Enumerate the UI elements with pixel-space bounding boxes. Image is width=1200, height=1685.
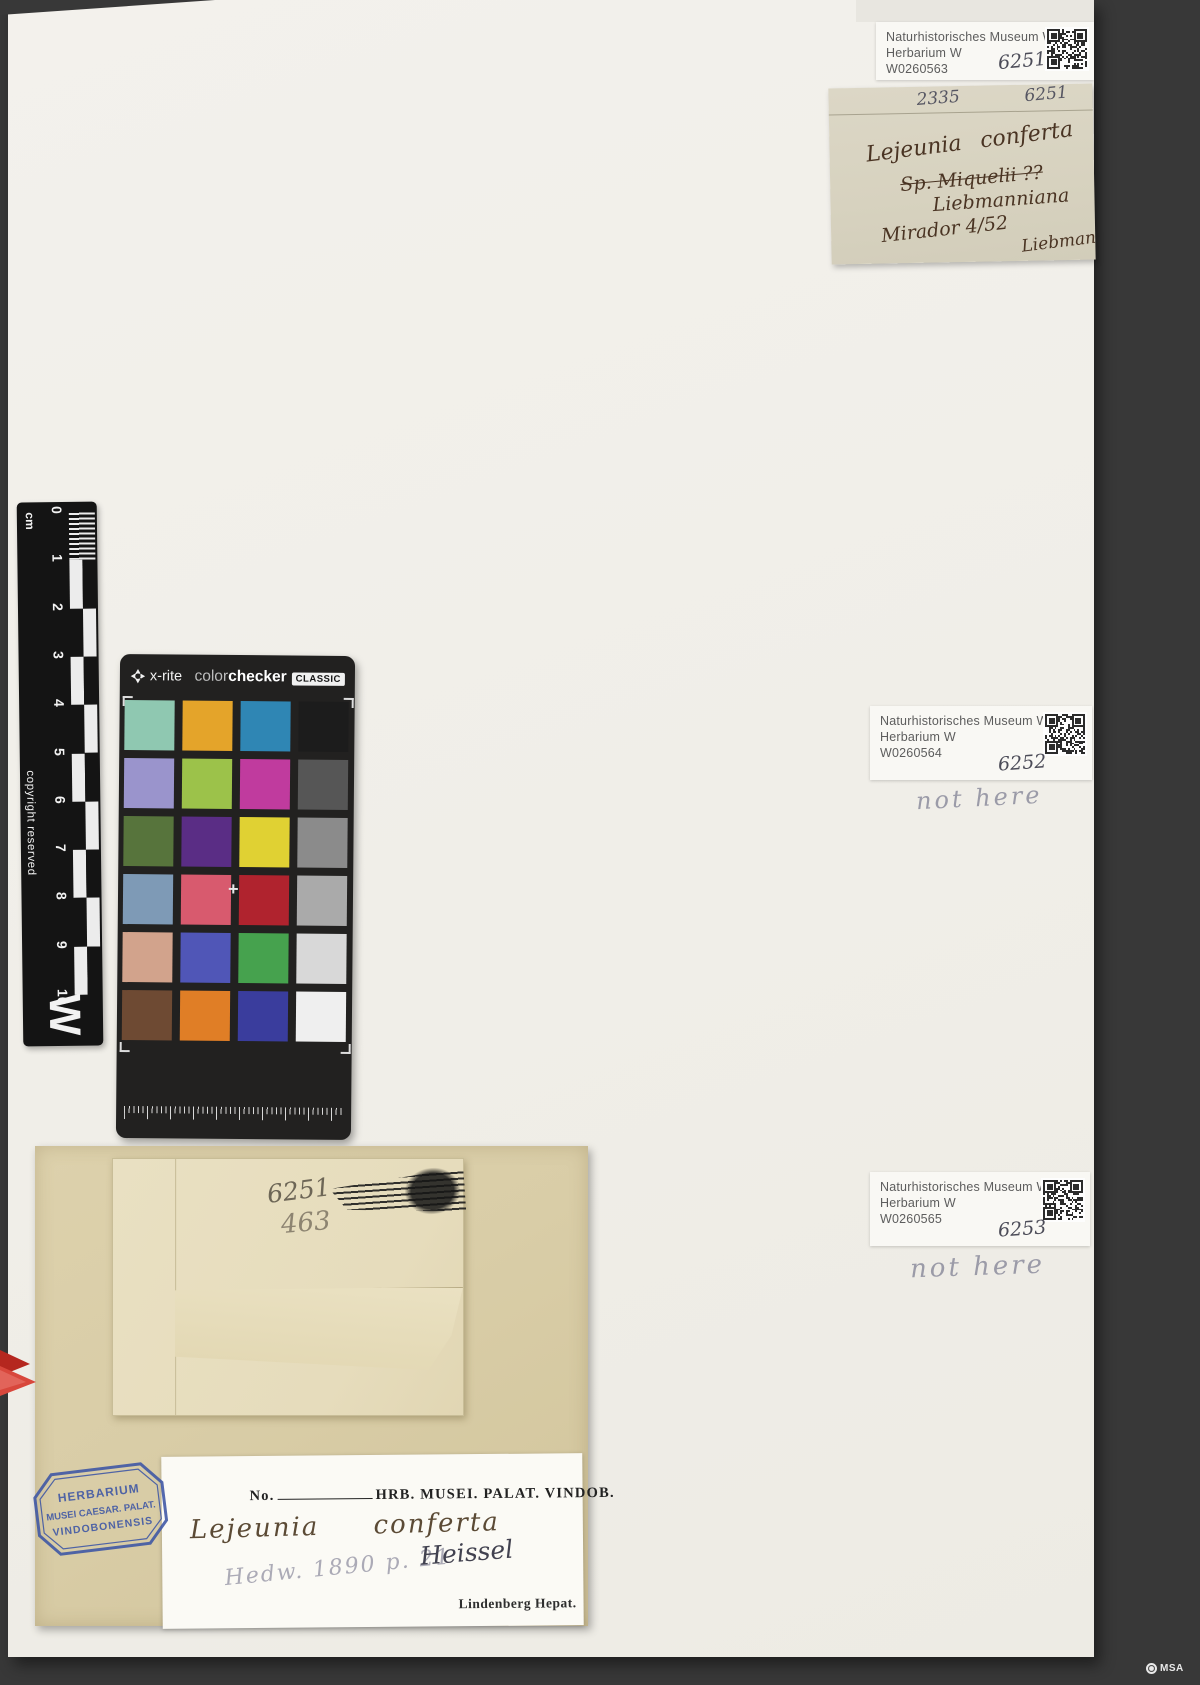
scanner-logo-icon [1146,1663,1157,1674]
pencil-number-left: 2335 [916,87,961,110]
color-patch [180,933,230,983]
blank-line [277,1487,372,1500]
ruler-checker-cell [85,801,99,849]
stamp-border: HERBARIUM MUSEI CAESAR. PALAT. VINDOBONE… [29,1458,172,1560]
crop-mark-icon [120,1042,130,1052]
color-patch [298,760,348,810]
color-patch [122,932,172,982]
ruler-number: 0 [49,506,65,514]
qr-code [1045,27,1089,71]
printed-packet-label: No.HRB. MUSEI. PALAT. VINDOB. Lejeunia c… [161,1453,583,1629]
color-patch [182,759,232,809]
herbarium-header-text: HRB. MUSEI. PALAT. VINDOB. [375,1485,614,1503]
crop-mark-icon [344,698,354,708]
ruler-checker-cell [70,608,84,656]
qr-code [1041,1178,1085,1222]
color-patch [240,701,290,751]
x-rite-logo-icon [130,668,146,684]
ruler-checker-cell [87,946,101,994]
color-patch [123,874,173,924]
label-crease [829,109,1093,115]
handwritten-number: 6251 [997,48,1047,74]
scale-ruler: cm 012345678910 copyright reserved W [17,502,104,1047]
ruler-numbers: 012345678910 [17,502,97,503]
color-patch [122,990,172,1040]
ruler-checker-cell [74,946,88,994]
color-patch [297,818,347,868]
envelope-pencil-number-2: 463 [280,1206,332,1240]
museum-label-2: Naturhistorisches Museum Wien Herbarium … [870,706,1092,780]
ruler-mm-ticks [69,512,96,560]
registration-cross: + [228,879,239,900]
color-patch [180,991,230,1041]
color-patch [181,875,231,925]
ruler-checker-cell [86,850,100,898]
scanner-logo: MSA [1146,1663,1184,1674]
ruler-checker-cell [84,705,98,753]
museum-label-1: Naturhistorisches Museum Wien Herbarium … [876,22,1094,80]
old-handwritten-label: 2335 6251 Lejeunia conferta Sp. Miquelii… [828,83,1095,264]
ruler-checker-cell [72,753,86,801]
colorchecker-ruler-ticks-major [124,1106,343,1121]
ruler-checker-cell [73,850,87,898]
color-patch [238,933,288,983]
herbarium-stamp: HERBARIUM MUSEI CAESAR. PALAT. VINDOBONE… [29,1458,173,1565]
x-rite-brand: x-rite [130,668,182,684]
stamp-line1: HERBARIUM [57,1481,140,1505]
packet-label-header: No.HRB. MUSEI. PALAT. VINDOB. [250,1485,615,1505]
handwritten-number: 6252 [997,750,1047,775]
under-sheet-edge [856,0,1094,22]
crop-mark-icon [341,1044,351,1054]
colorchecker-wordmark: colorcheckerCLASSIC [194,668,345,687]
not-here-note: not here [910,1250,1046,1285]
color-patch [182,701,232,751]
ruler-number: 4 [51,699,67,707]
colorchecker-card: x-rite colorcheckerCLASSIC + [116,654,355,1140]
determiner-handwriting: Heissel [419,1535,514,1571]
ruler-copyright-text: copyright reserved [24,770,37,876]
crop-mark-icon [123,696,133,706]
ruler-number: 2 [50,603,66,611]
color-patch [124,700,174,750]
ruler-number: 8 [53,892,69,900]
color-patch [181,817,231,867]
ruler-number: 3 [50,651,66,659]
envelope-flap [175,1287,463,1370]
x-rite-text: x-rite [150,668,182,684]
ruler-checker-cell [69,560,83,608]
color-patch [123,816,173,866]
color-patch [296,992,346,1042]
pencil-number-right: 6251 [1024,82,1069,106]
scanner-logo-text: MSA [1160,1663,1184,1674]
ruler-number: 7 [53,844,69,852]
color-patch [239,817,289,867]
color-patch [240,759,290,809]
ruler-checker-cell [85,753,99,801]
ink-scribble-blob [403,1165,463,1216]
ruler-number: 5 [52,747,68,755]
ruler-checker-cell [71,657,85,705]
ruler-unit-label: cm [23,512,37,530]
color-patch [298,702,348,752]
ruler-checker-cell [74,898,88,946]
ruler-number: 6 [52,796,68,804]
envelope-fold-line [175,1159,177,1415]
ruler-w-letter: W [39,994,90,1036]
ruler-checker-cell [71,705,85,753]
ruler-number: 1 [49,554,65,562]
collector-handwriting: Liebman [1020,228,1097,257]
red-clip-icon [0,1342,38,1400]
red-clip [0,1342,38,1405]
species-handwriting: Lejeunia conferta [865,117,1075,168]
no-label: No. [250,1488,275,1504]
colorchecker-header: x-rite colorcheckerCLASSIC [120,654,355,700]
citation-handwriting: Hedw. 1890 p. 21 [224,1544,453,1591]
ruler-tick-strip [69,512,101,995]
locality-handwriting: Mirador 4/52 [880,212,1009,247]
qr-code [1043,712,1087,756]
color-patch [239,875,289,925]
color-patch [124,758,174,808]
colorchecker-grid [122,700,349,1042]
ruler-checker-cell [87,898,101,946]
color-patch [297,876,347,926]
museum-label-3: Naturhistorisches Museum Wien Herbarium … [870,1172,1090,1246]
color-patch [238,991,288,1041]
color-patch [296,934,346,984]
series-imprint: Lindenberg Hepat. [458,1595,576,1612]
classic-badge: CLASSIC [292,672,345,685]
handwritten-number: 6253 [997,1216,1047,1241]
ruler-checker-cell [84,656,98,704]
ruler-checker-cell [72,801,86,849]
scan-canvas: Naturhistorisches Museum Wien Herbarium … [0,0,1200,1685]
ruler-number: 9 [54,941,70,949]
ruler-checker-cell [83,608,97,656]
ruler-checker-cell [82,560,96,608]
